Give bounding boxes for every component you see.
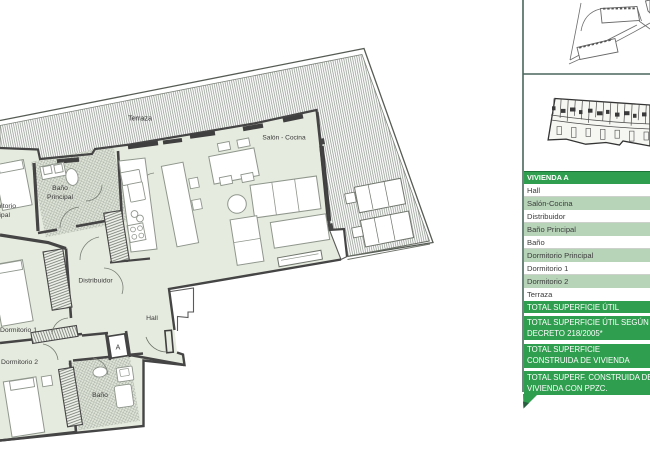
svg-text:rmitorio: rmitorio (0, 203, 16, 210)
svg-text:Hall: Hall (146, 315, 158, 322)
svg-text:A: A (116, 345, 121, 352)
svg-text:Principal: Principal (47, 194, 74, 201)
svg-text:Salón - Cocina: Salón - Cocina (262, 135, 306, 142)
svg-text:Baño: Baño (52, 185, 68, 192)
svg-text:Dormitorio 1: Dormitorio 1 (0, 327, 37, 334)
svg-text:Baño: Baño (92, 392, 108, 399)
svg-text:Dormitorio 2: Dormitorio 2 (1, 359, 38, 366)
svg-text:ncipal: ncipal (0, 212, 10, 219)
svg-text:Terraza: Terraza (128, 114, 152, 123)
svg-text:Distribuidor: Distribuidor (78, 278, 113, 285)
